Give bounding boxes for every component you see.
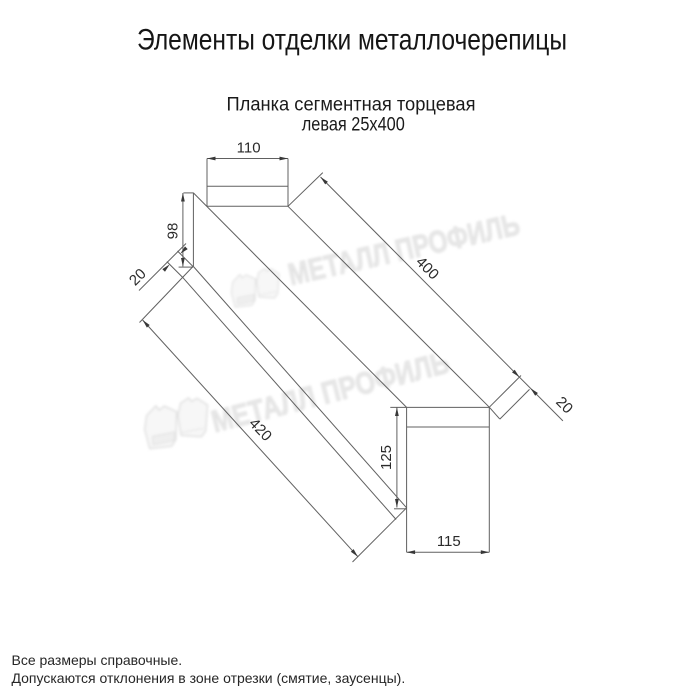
svg-text:98: 98 — [165, 223, 182, 240]
svg-text:Все размеры справочные.: Все размеры справочные. — [12, 652, 183, 668]
svg-text:110: 110 — [237, 140, 261, 157]
svg-text:115: 115 — [437, 533, 461, 550]
svg-text:левая 25х400: левая 25х400 — [302, 115, 405, 136]
svg-text:Допускаются отклонения в зоне: Допускаются отклонения в зоне отрезки (с… — [12, 670, 406, 686]
svg-text:Элементы отделки металлочерепи: Элементы отделки металлочерепицы — [137, 23, 567, 56]
svg-text:Планка сегментная торцевая: Планка сегментная торцевая — [227, 95, 476, 116]
svg-text:125: 125 — [378, 445, 395, 470]
